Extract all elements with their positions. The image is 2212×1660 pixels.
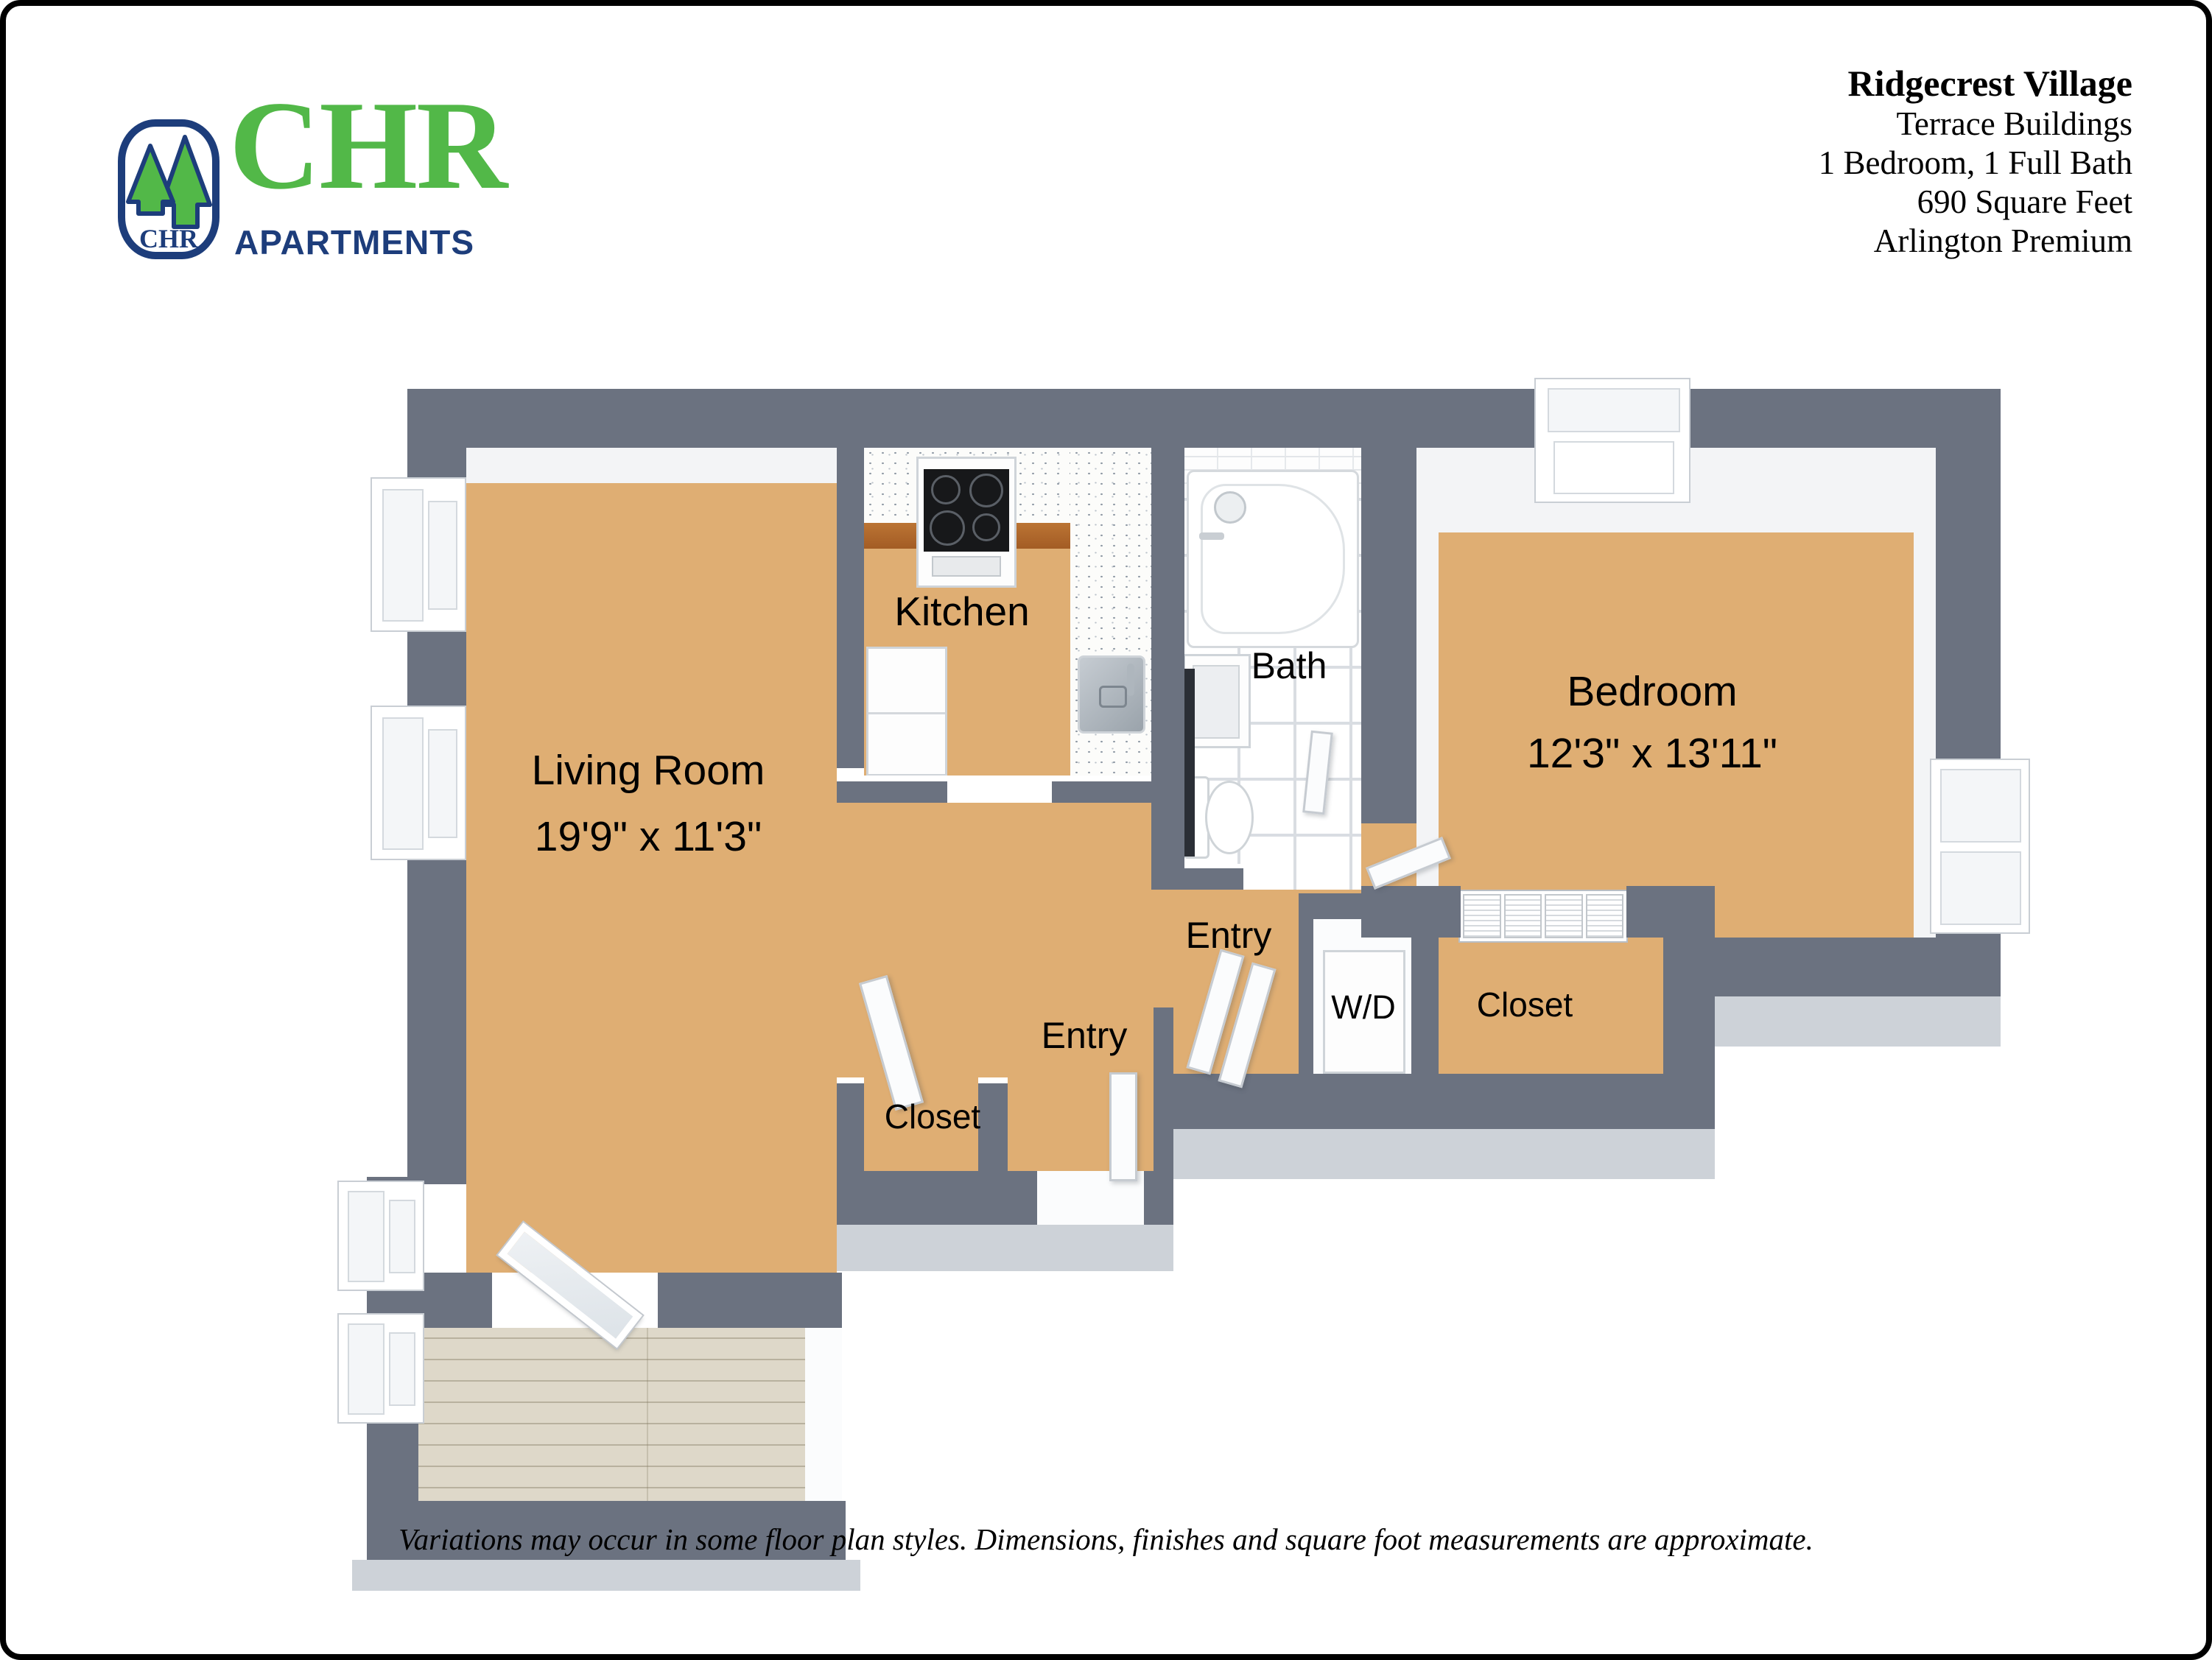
window — [337, 1181, 424, 1291]
kitchen-sink — [1078, 655, 1145, 734]
disclaimer-text: Variations may occur in some floor plan … — [6, 1522, 2206, 1557]
hall-closet-label: Closet — [885, 1097, 980, 1136]
bath-label: Bath — [1251, 644, 1327, 687]
wall-north — [407, 389, 2001, 448]
living-room-label: Living Room 19'9" x 11'3" — [532, 737, 765, 870]
wall-bath-south-stub — [1184, 864, 1243, 890]
sink-drain — [1099, 686, 1127, 708]
wall-outer-face — [837, 1225, 1173, 1271]
bathtub — [1187, 470, 1359, 648]
wall-outer-face — [352, 1560, 860, 1591]
vanity-basin — [1193, 665, 1240, 739]
washer-dryer-label: W/D — [1331, 988, 1395, 1027]
wall-closet-stub-right — [1626, 886, 1715, 938]
toilet-bowl — [1205, 781, 1254, 854]
wall-bath-west — [1151, 389, 1184, 890]
bedroom-closet-label: Closet — [1477, 985, 1573, 1024]
wall-bath-east — [1361, 389, 1416, 823]
window — [337, 1313, 424, 1424]
wall-living-south-right — [658, 1273, 842, 1328]
porch-floor — [418, 1328, 805, 1508]
wall-hall-closet-right — [978, 1077, 1008, 1173]
window — [371, 706, 466, 860]
wall-front-right — [1144, 1171, 1173, 1225]
wall-kitchen-divider — [837, 389, 864, 776]
entry-label-upper: Entry — [1186, 914, 1272, 957]
sink-faucet — [1127, 664, 1134, 696]
window — [1930, 759, 2030, 934]
wall-bedroom-closet-east — [1663, 938, 1715, 1081]
wall-front-left — [837, 1171, 1037, 1225]
towel-radiator — [1184, 669, 1195, 857]
oven-drawer — [932, 556, 1001, 577]
kitchen-label: Kitchen — [894, 588, 1029, 635]
stove — [916, 457, 1017, 588]
wall-living-south-left — [418, 1273, 492, 1328]
wall-outer-face — [1173, 1129, 1715, 1179]
wall-kitchen-south-left — [837, 776, 947, 803]
front-door — [1109, 1072, 1137, 1181]
cooktop — [924, 469, 1009, 552]
wall-face — [466, 448, 837, 483]
wall-outer-face — [1715, 996, 2001, 1047]
window — [371, 477, 466, 632]
fridge-seam — [868, 712, 945, 714]
floorplan: Living Room 19'9" x 11'3" Kitchen Bath B… — [6, 6, 2212, 1660]
tub-faucet-icon — [1199, 532, 1224, 540]
window-bay — [1534, 378, 1690, 503]
refrigerator — [866, 647, 947, 776]
living-room-floor — [466, 483, 837, 1273]
floorplan-sheet: CHR CHR APARTMENTS Ridgecrest Village Te… — [0, 0, 2212, 1660]
bedroom-dimensions: 12'3" x 13'11" — [1527, 722, 1777, 784]
wall-wd-north — [1299, 893, 1411, 919]
porch-side-wall — [805, 1328, 842, 1508]
wall-bedroom-closet-west — [1411, 919, 1439, 1081]
bedroom-label: Bedroom 12'3" x 13'11" — [1527, 661, 1777, 784]
shower-head-icon — [1214, 491, 1246, 524]
wall-hall-closet-left — [837, 1077, 864, 1173]
wall-wd-west — [1299, 919, 1313, 1081]
living-room-dimensions: 19'9" x 11'3" — [532, 803, 765, 870]
closet-louver-doors — [1458, 890, 1628, 943]
entry-label-lower: Entry — [1042, 1014, 1128, 1057]
